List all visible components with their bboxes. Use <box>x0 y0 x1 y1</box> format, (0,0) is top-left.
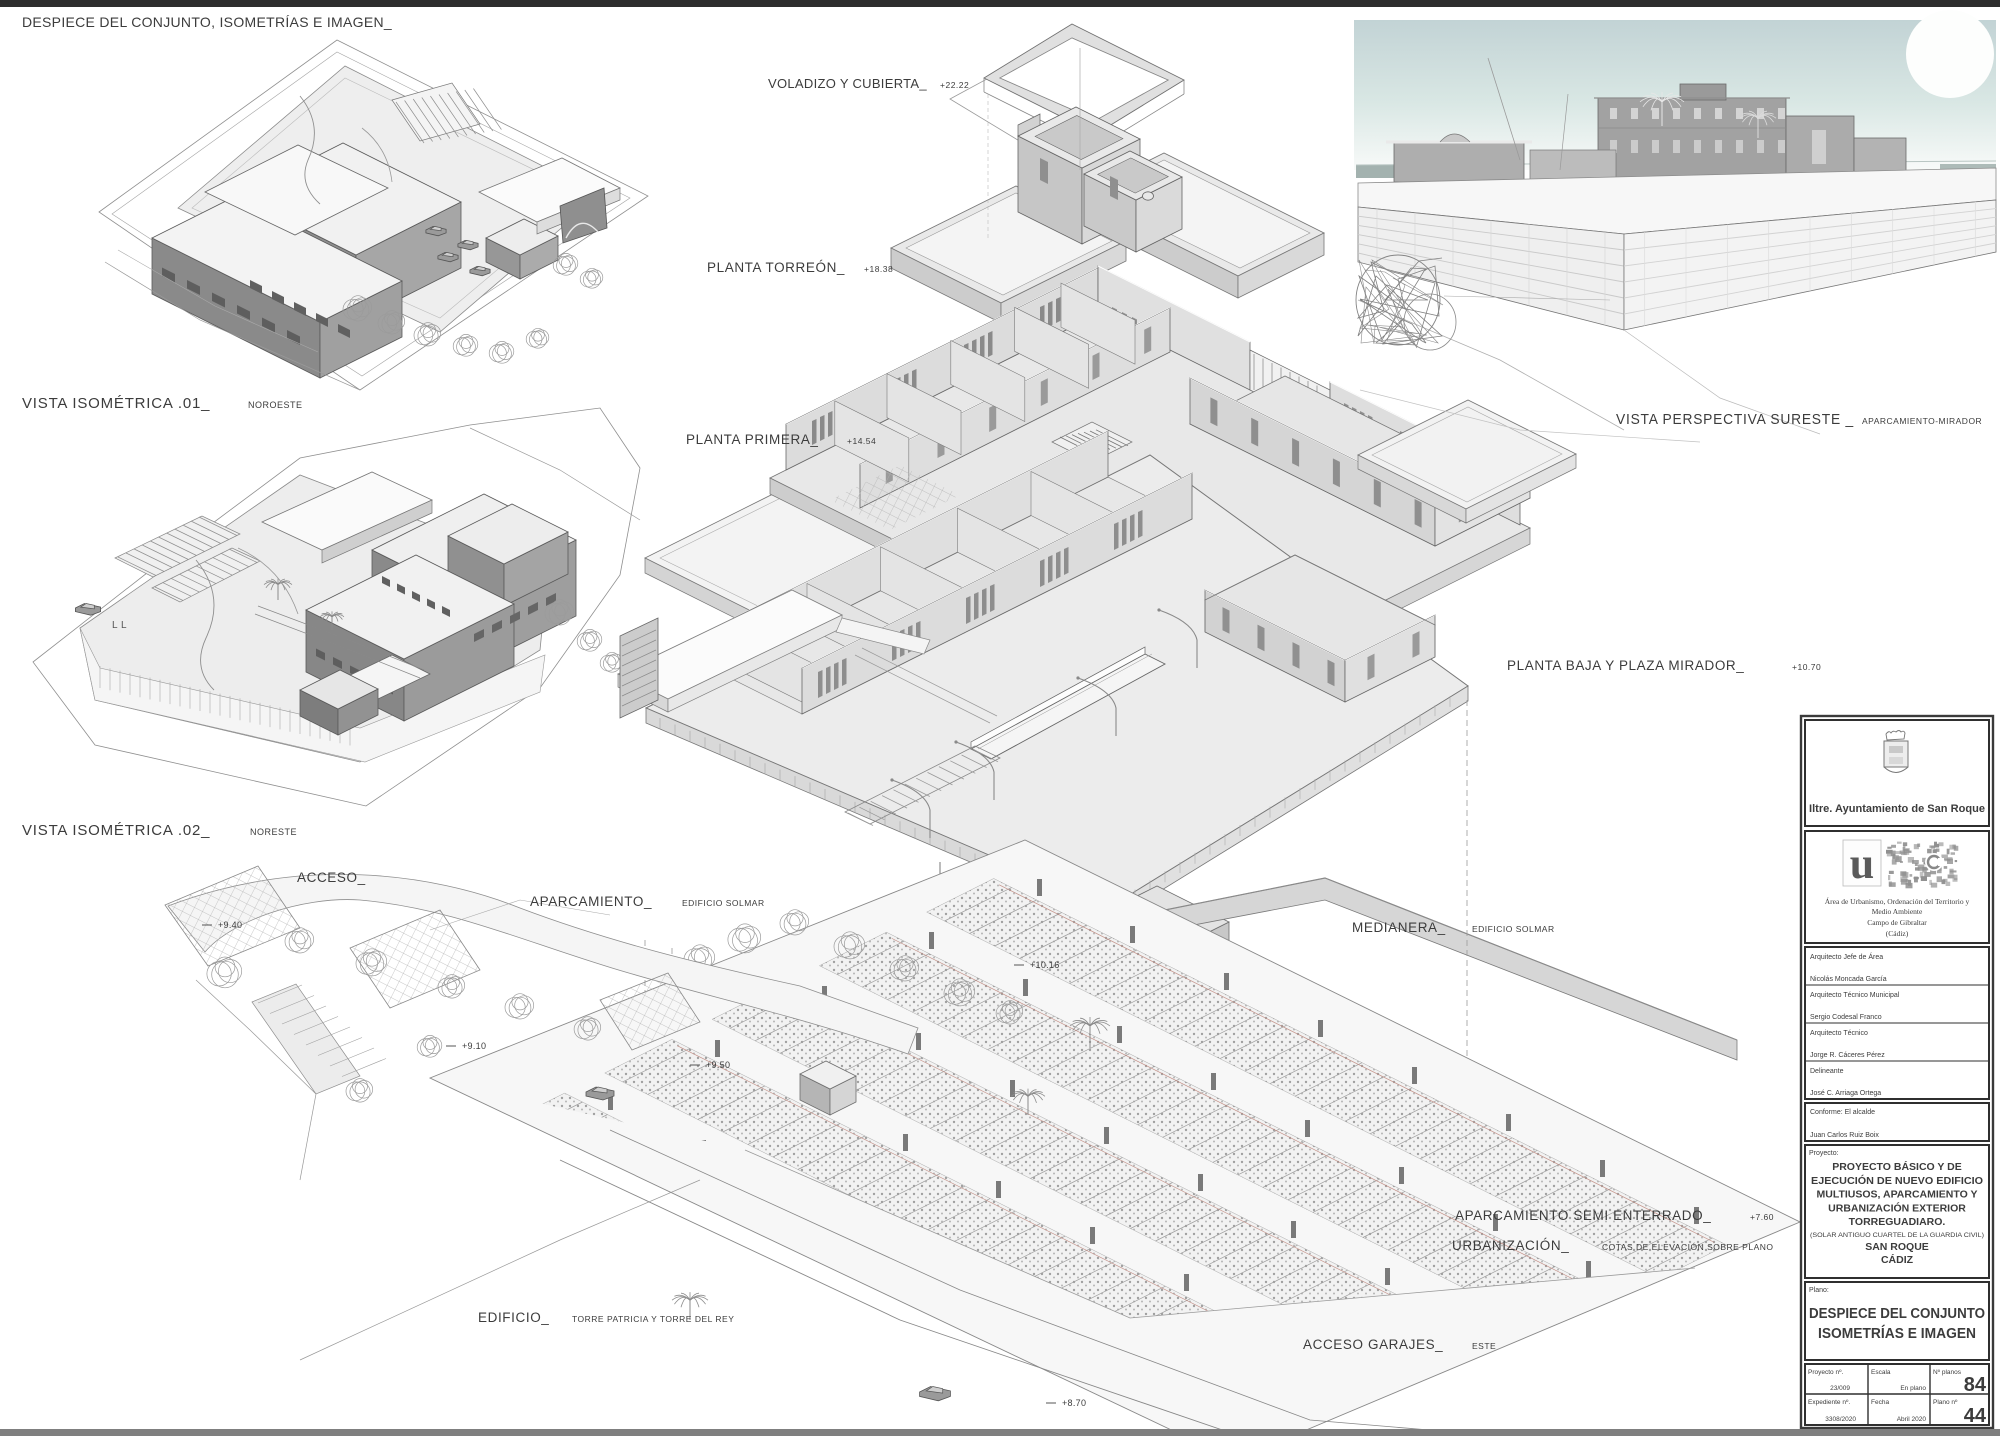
svg-text:Juan Carlos Ruiz Boix: Juan Carlos Ruiz Boix <box>1810 1132 1879 1139</box>
svg-text:Nº planos: Nº planos <box>1933 1369 1962 1376</box>
svg-text:URBANIZACIÓN_: URBANIZACIÓN_ <box>1452 1238 1569 1253</box>
svg-text:SAN ROQUE: SAN ROQUE <box>1865 1241 1929 1253</box>
svg-text:Proyecto nº.: Proyecto nº. <box>1808 1369 1843 1376</box>
svg-text:Plano:: Plano: <box>1809 1287 1829 1294</box>
svg-text:Campo de Gibraltar: Campo de Gibraltar <box>1867 918 1927 927</box>
svg-text:+10.70: +10.70 <box>1792 662 1821 672</box>
svg-text:APARCAMIENTO SEMI ENTERRADO_: APARCAMIENTO SEMI ENTERRADO_ <box>1455 1208 1711 1223</box>
svg-text:VISTA PERSPECTIVA SURESTE _: VISTA PERSPECTIVA SURESTE _ <box>1616 412 1854 428</box>
svg-text:+9.50: +9.50 <box>706 1060 730 1070</box>
svg-text:Escala: Escala <box>1871 1369 1891 1376</box>
svg-text:COTAS DE ELEVACIÓN SOBRE PLANO: COTAS DE ELEVACIÓN SOBRE PLANO <box>1602 1242 1774 1252</box>
svg-text:APARCAMIENTO_: APARCAMIENTO_ <box>530 894 652 909</box>
svg-text:+18.38: +18.38 <box>864 264 893 274</box>
svg-text:DESPIECE DEL CONJUNTO, ISOMETR: DESPIECE DEL CONJUNTO, ISOMETRÍAS E IMAG… <box>22 14 392 30</box>
svg-text:23/009: 23/009 <box>1830 1385 1850 1392</box>
svg-text:+8.70: +8.70 <box>1062 1398 1086 1408</box>
svg-text:NORESTE: NORESTE <box>250 827 297 837</box>
svg-text:Arquitecto Técnico Municipal: Arquitecto Técnico Municipal <box>1810 992 1900 999</box>
svg-text:+9.40: +9.40 <box>218 920 242 930</box>
svg-text:ACCESO_: ACCESO_ <box>297 870 366 885</box>
svg-text:u: u <box>1850 839 1874 888</box>
svg-text:Conforme: El alcalde: Conforme: El alcalde <box>1810 1109 1875 1116</box>
svg-text:PLANTA PRIMERA_: PLANTA PRIMERA_ <box>686 432 819 447</box>
svg-text:VISTA ISOMÉTRICA .02_: VISTA ISOMÉTRICA .02_ <box>22 822 210 839</box>
svg-text:(SOLAR ANTIGUO CUARTEL DE LA G: (SOLAR ANTIGUO CUARTEL DE LA GUARDIA CIV… <box>1810 1232 1984 1239</box>
svg-text:+22.22: +22.22 <box>940 80 969 90</box>
svg-text:Arquitecto Jefe de Área: Arquitecto Jefe de Área <box>1810 952 1883 961</box>
svg-text:Plano nº: Plano nº <box>1933 1399 1958 1406</box>
svg-text:Medio Ambiente: Medio Ambiente <box>1872 907 1923 916</box>
svg-text:Proyecto:: Proyecto: <box>1809 1150 1839 1157</box>
svg-text:ACCESO GARAJES_: ACCESO GARAJES_ <box>1303 1337 1443 1352</box>
svg-text:NOROESTE: NOROESTE <box>248 400 303 410</box>
svg-text:Jorge R. Cáceres Pérez: Jorge R. Cáceres Pérez <box>1810 1052 1885 1059</box>
svg-text:EDIFICIO SOLMAR: EDIFICIO SOLMAR <box>1472 924 1555 934</box>
svg-text:Área de Urbanismo, Ordenación: Área de Urbanismo, Ordenación del Territ… <box>1825 896 1970 906</box>
svg-text:EJECUCIÓN DE NUEVO EDIFICIO: EJECUCIÓN DE NUEVO EDIFICIO <box>1811 1174 1983 1187</box>
svg-text:Arquitecto Técnico: Arquitecto Técnico <box>1810 1030 1868 1037</box>
svg-text:MULTIUSOS, APARCAMIENTO Y: MULTIUSOS, APARCAMIENTO Y <box>1816 1189 1977 1201</box>
svg-text:+7.60: +7.60 <box>1750 1212 1774 1222</box>
svg-text:DESPIECE DEL CONJUNTO: DESPIECE DEL CONJUNTO <box>1809 1306 1985 1322</box>
svg-text:TORREGUADIARO.: TORREGUADIARO. <box>1849 1216 1946 1228</box>
svg-text:En plano: En plano <box>1900 1385 1926 1392</box>
svg-text:EDIFICIO SOLMAR: EDIFICIO SOLMAR <box>682 898 765 908</box>
svg-text:CÁDIZ: CÁDIZ <box>1881 1253 1914 1266</box>
svg-text:L L: L L <box>112 620 127 631</box>
svg-text:PROYECTO BÁSICO Y DE: PROYECTO BÁSICO Y DE <box>1832 1160 1962 1173</box>
svg-text:44: 44 <box>1964 1405 1987 1427</box>
svg-text:VISTA ISOMÉTRICA .01_: VISTA ISOMÉTRICA .01_ <box>22 395 210 412</box>
svg-text:Nicolás Moncada García: Nicolás Moncada García <box>1810 976 1887 983</box>
svg-text:EDIFICIO_: EDIFICIO_ <box>478 1310 549 1325</box>
svg-text:Abril 2020: Abril 2020 <box>1897 1416 1927 1423</box>
svg-text:Sergio Codesal Franco: Sergio Codesal Franco <box>1810 1014 1882 1021</box>
svg-text:Delineante: Delineante <box>1810 1068 1844 1075</box>
svg-text:ISOMETRÍAS E IMAGEN: ISOMETRÍAS E IMAGEN <box>1818 1325 1976 1342</box>
svg-text:PLANTA BAJA Y PLAZA MIRADOR_: PLANTA BAJA Y PLAZA MIRADOR_ <box>1507 658 1744 673</box>
svg-text:MEDIANERA_: MEDIANERA_ <box>1352 920 1446 935</box>
svg-text:+14.54: +14.54 <box>847 436 876 446</box>
svg-text:+9.10: +9.10 <box>462 1041 486 1051</box>
svg-text:VOLADIZO Y CUBIERTA_: VOLADIZO Y CUBIERTA_ <box>768 76 927 91</box>
svg-text:José C. Arriaga Ortega: José C. Arriaga Ortega <box>1810 1090 1881 1097</box>
svg-text:+10.16: +10.16 <box>1030 960 1060 970</box>
svg-text:(Cádiz): (Cádiz) <box>1886 929 1909 938</box>
svg-text:TORRE PATRICIA Y TORRE DEL REY: TORRE PATRICIA Y TORRE DEL REY <box>572 1314 734 1324</box>
svg-text:APARCAMIENTO-MIRADOR: APARCAMIENTO-MIRADOR <box>1862 416 1982 426</box>
svg-text:URBANIZACIÓN EXTERIOR: URBANIZACIÓN EXTERIOR <box>1828 1201 1966 1214</box>
svg-text:3308/2020: 3308/2020 <box>1825 1416 1856 1423</box>
svg-text:ESTE: ESTE <box>1472 1341 1496 1351</box>
svg-text:Expediente nº.: Expediente nº. <box>1808 1399 1850 1406</box>
svg-text:Iltre. Ayuntamiento de San Roq: Iltre. Ayuntamiento de San Roque <box>1809 803 1985 815</box>
svg-text:Fecha: Fecha <box>1871 1399 1889 1406</box>
svg-text:84: 84 <box>1964 1374 1987 1396</box>
svg-text:PLANTA TORREÓN_: PLANTA TORREÓN_ <box>707 260 845 275</box>
